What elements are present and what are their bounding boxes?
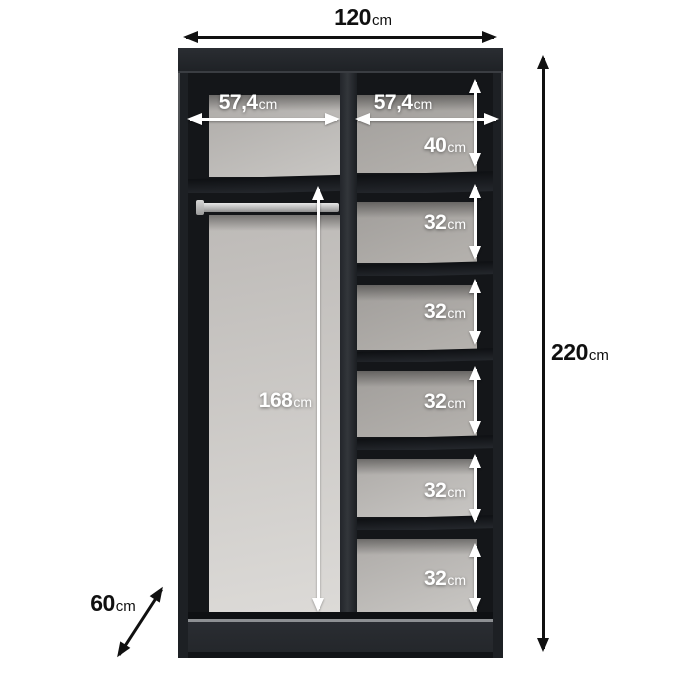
section-5-height-label: 32cm — [424, 480, 466, 501]
section-2-height-arrow — [469, 184, 481, 260]
depth-value: 60 — [90, 590, 115, 616]
width-value: 120 — [334, 4, 371, 30]
left-width-value: 57,4 — [219, 91, 258, 114]
section-1-value: 40 — [424, 134, 446, 157]
section-4-unit: cm — [447, 395, 466, 411]
height-arrow — [537, 55, 549, 652]
base-shadow — [188, 652, 493, 658]
width-unit: cm — [372, 12, 392, 29]
wardrobe-top-panel — [178, 48, 503, 73]
section-3-height-arrow — [469, 279, 481, 345]
rail-end-cap — [196, 200, 204, 215]
wardrobe-dimension-diagram: 120cm 220cm 60cm 57,4cm 57,4cm 168cm 40c… — [0, 0, 700, 700]
section-1-unit: cm — [447, 139, 466, 155]
section-2-height-label: 32cm — [424, 212, 466, 233]
section-6-unit: cm — [447, 572, 466, 588]
center-divider-panel — [340, 73, 357, 612]
right-width-value: 57,4 — [374, 91, 413, 114]
depth-label: 60cm — [90, 592, 136, 615]
hanging-height-unit: cm — [293, 394, 312, 410]
section-5-unit: cm — [447, 484, 466, 500]
section-1-height-arrow — [469, 79, 481, 167]
left-width-unit: cm — [259, 96, 278, 112]
depth-unit: cm — [116, 598, 136, 615]
section-6-height-arrow — [469, 543, 481, 612]
width-label: 120cm — [334, 6, 392, 29]
section-3-value: 32 — [424, 300, 446, 323]
left-width-arrow — [187, 113, 340, 125]
right-width-label: 57,4cm — [374, 92, 433, 113]
section-6-value: 32 — [424, 567, 446, 590]
hanging-height-value: 168 — [259, 389, 293, 412]
width-arrow — [183, 31, 497, 43]
right-width-unit: cm — [414, 96, 433, 112]
hanging-height-arrow — [312, 186, 324, 612]
section-2-value: 32 — [424, 211, 446, 234]
section-3-height-label: 32cm — [424, 301, 466, 322]
height-value: 220 — [551, 339, 588, 365]
section-2-unit: cm — [447, 216, 466, 232]
height-unit: cm — [589, 347, 609, 364]
section-4-height-arrow — [469, 366, 481, 435]
section-4-height-label: 32cm — [424, 391, 466, 412]
left-top-cubby — [188, 73, 340, 177]
section-3-unit: cm — [447, 305, 466, 321]
section-4-value: 32 — [424, 390, 446, 413]
height-label: 220cm — [551, 341, 609, 364]
interior-floor — [188, 612, 493, 622]
hanging-height-label: 168cm — [259, 390, 312, 411]
base-plinth — [188, 622, 493, 652]
section-5-value: 32 — [424, 479, 446, 502]
section-1-height-label: 40cm — [424, 135, 466, 156]
section-5-height-arrow — [469, 454, 481, 523]
section-6-height-label: 32cm — [424, 568, 466, 589]
left-width-label: 57,4cm — [219, 92, 278, 113]
